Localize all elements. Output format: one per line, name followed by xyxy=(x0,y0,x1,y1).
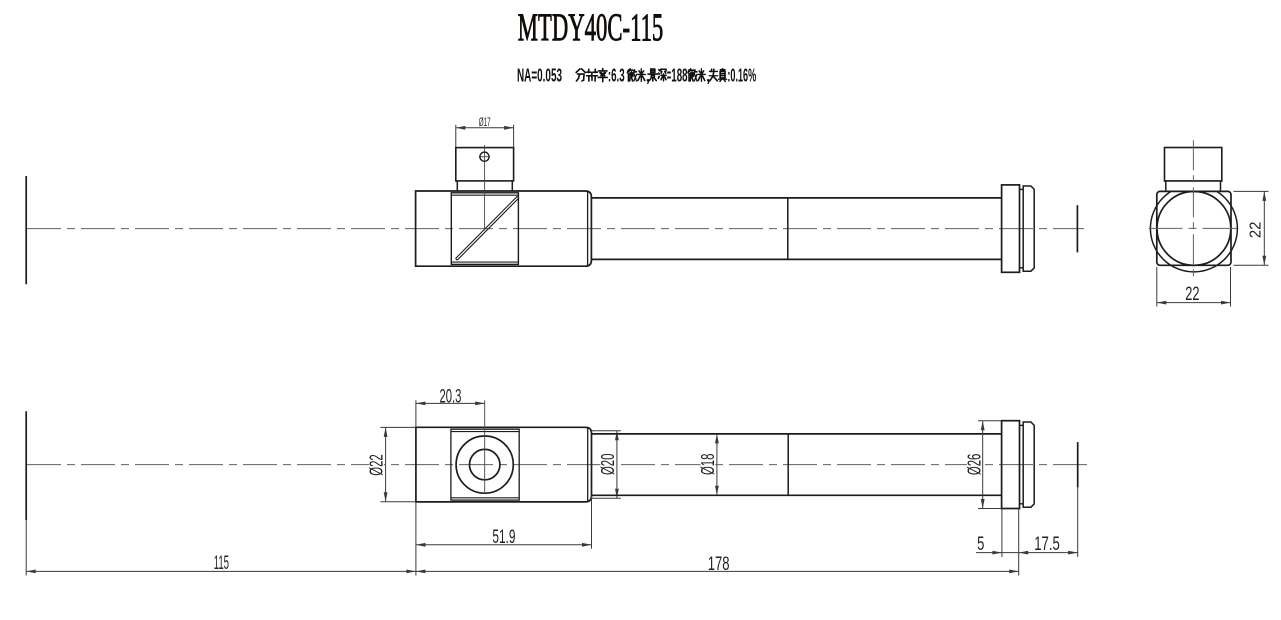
svg-text:Ø18: Ø18 xyxy=(698,454,718,476)
svg-text:,: , xyxy=(646,69,650,86)
svg-text:188: 188 xyxy=(671,66,687,86)
svg-text:Ø26: Ø26 xyxy=(964,454,984,476)
svg-text:Ø22: Ø22 xyxy=(366,454,386,476)
svg-text:Ø20: Ø20 xyxy=(598,454,618,476)
svg-text:17.5: 17.5 xyxy=(1034,534,1060,555)
svg-text:22: 22 xyxy=(1185,284,1199,305)
svg-text:Ø17: Ø17 xyxy=(479,115,491,129)
svg-text:178: 178 xyxy=(708,554,730,575)
svg-text:NA=0.053: NA=0.053 xyxy=(517,66,562,86)
svg-text::0.16%: :0.16% xyxy=(727,66,756,86)
svg-text:5: 5 xyxy=(977,534,984,555)
svg-text:51.9: 51.9 xyxy=(492,527,515,548)
svg-text:22: 22 xyxy=(1247,222,1264,239)
svg-text:115: 115 xyxy=(214,553,229,574)
svg-text::6.3: :6.3 xyxy=(608,66,625,86)
svg-text:20.3: 20.3 xyxy=(440,386,462,407)
svg-text:MTDY40C-115: MTDY40C-115 xyxy=(518,5,664,49)
